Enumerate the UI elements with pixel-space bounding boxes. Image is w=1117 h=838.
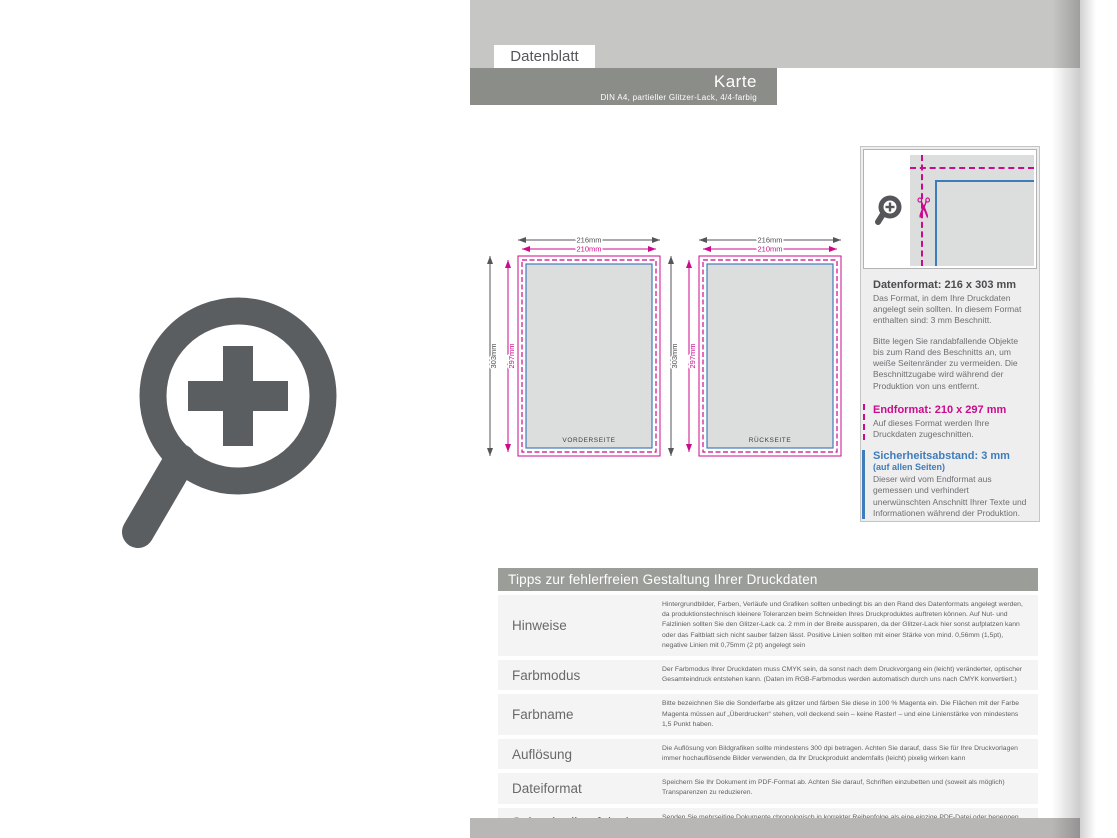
corner-zoom-preview: ✂ bbox=[863, 149, 1037, 269]
page-title: Karte bbox=[470, 72, 757, 92]
tab-datenblatt[interactable]: Datenblatt bbox=[494, 45, 595, 68]
zoom-plus-icon[interactable] bbox=[118, 278, 368, 568]
footer-band bbox=[470, 818, 1080, 838]
safety-outline bbox=[526, 264, 652, 448]
endformat-block: Endformat: 210 x 297 mm Auf dieses Forma… bbox=[863, 404, 1027, 440]
scissors-icon: ✂ bbox=[909, 196, 937, 219]
row-text-farbname: Bitte bezeichnen Sie die Sonderfarbe als… bbox=[662, 694, 1038, 735]
card-front-diagram: 216mm 210mm 303mm 297mm VORDERSEITE bbox=[482, 232, 664, 469]
card-back-diagram: 216mm 210mm 303mm 297mm RÜCKSEITE bbox=[663, 232, 845, 469]
page-subtitle: DIN A4, partieller Glitzer-Lack, 4/4-far… bbox=[470, 93, 757, 102]
page-edge-shadow bbox=[1052, 0, 1080, 838]
safety-outline bbox=[707, 264, 833, 448]
tab-datenblatt-label: Datenblatt bbox=[510, 48, 578, 65]
row-label-dateiformat: Dateiformat bbox=[498, 773, 662, 803]
tips-section: Tipps zur fehlerfreien Gestaltung Ihrer … bbox=[498, 568, 1038, 838]
dim-inner-width-label: 210mm bbox=[757, 245, 782, 254]
dim-outer-width-label: 216mm bbox=[757, 236, 782, 245]
datenformat-text-2: Bitte legen Sie randabfallende Objekte b… bbox=[873, 336, 1027, 392]
row-label-hinweise: Hinweise bbox=[498, 595, 662, 656]
title-band: Karte DIN A4, partieller Glitzer-Lack, 4… bbox=[470, 68, 777, 105]
dim-outer-height-label: 303mm bbox=[489, 343, 498, 368]
dim-inner-height-label: 297mm bbox=[688, 343, 697, 368]
sicherheitsabstand-heading: Sicherheitsabstand: 3 mm bbox=[873, 450, 1027, 462]
datenformat-heading: Datenformat: 216 x 303 mm bbox=[873, 279, 1027, 291]
back-side-label: RÜCKSEITE bbox=[749, 436, 792, 444]
tips-header: Tipps zur fehlerfreien Gestaltung Ihrer … bbox=[498, 568, 1038, 591]
dim-outer-width-label: 216mm bbox=[576, 236, 601, 245]
dim-inner-width-label: 210mm bbox=[576, 245, 601, 254]
sicherheitsabstand-text: Dieser wird vom Endformat aus gemessen u… bbox=[873, 474, 1027, 519]
front-side-label: VORDERSEITE bbox=[562, 437, 615, 444]
table-row: Hinweise Hintergrundbilder, Farben, Verl… bbox=[498, 595, 1038, 656]
cutline-horizontal bbox=[910, 167, 1034, 169]
table-row: Dateiformat Speichern Sie Ihr Dokument i… bbox=[498, 773, 1038, 803]
sicherheitsabstand-block: Sicherheitsabstand: 3 mm (auf allen Seit… bbox=[862, 450, 1027, 519]
dim-inner-height-label: 297mm bbox=[507, 343, 516, 368]
row-text-farbmodus: Der Farbmodus Ihrer Druckdaten muss CMYK… bbox=[662, 660, 1038, 690]
dim-outer-height-label: 303mm bbox=[670, 343, 679, 368]
magnifier-plus-icon bbox=[874, 195, 904, 229]
table-row: Auflösung Die Auflösung von Bildgrafiken… bbox=[498, 739, 1038, 769]
row-text-hinweise: Hintergrundbilder, Farben, Verläufe und … bbox=[662, 595, 1038, 656]
format-info-panel: ✂ Datenformat: 216 x 303 mm Das Format, … bbox=[860, 146, 1040, 522]
row-text-dateiformat: Speichern Sie Ihr Dokument im PDF-Format… bbox=[662, 773, 1038, 803]
table-row: Farbname Bitte bezeichnen Sie die Sonder… bbox=[498, 694, 1038, 735]
page-edge-shadow-outer bbox=[1080, 0, 1096, 838]
plus-vertical bbox=[223, 346, 253, 446]
endformat-heading: Endformat: 210 x 297 mm bbox=[873, 404, 1027, 416]
row-label-farbname: Farbname bbox=[498, 694, 662, 735]
datenformat-text-1: Das Format, in dem Ihre Druckdaten angel… bbox=[873, 293, 1027, 327]
safety-line-vertical bbox=[935, 180, 937, 266]
row-label-farbmodus: Farbmodus bbox=[498, 660, 662, 690]
magnifier-handle bbox=[138, 460, 180, 532]
row-text-aufloesung: Die Auflösung von Bildgrafiken sollte mi… bbox=[662, 739, 1038, 769]
table-row: Farbmodus Der Farbmodus Ihrer Druckdaten… bbox=[498, 660, 1038, 690]
row-label-aufloesung: Auflösung bbox=[498, 739, 662, 769]
sicherheitsabstand-subtitle: (auf allen Seiten) bbox=[873, 462, 1027, 472]
endformat-text: Auf dieses Format werden Ihre Druckdaten… bbox=[873, 418, 1027, 440]
safety-line-horizontal bbox=[935, 180, 1034, 182]
